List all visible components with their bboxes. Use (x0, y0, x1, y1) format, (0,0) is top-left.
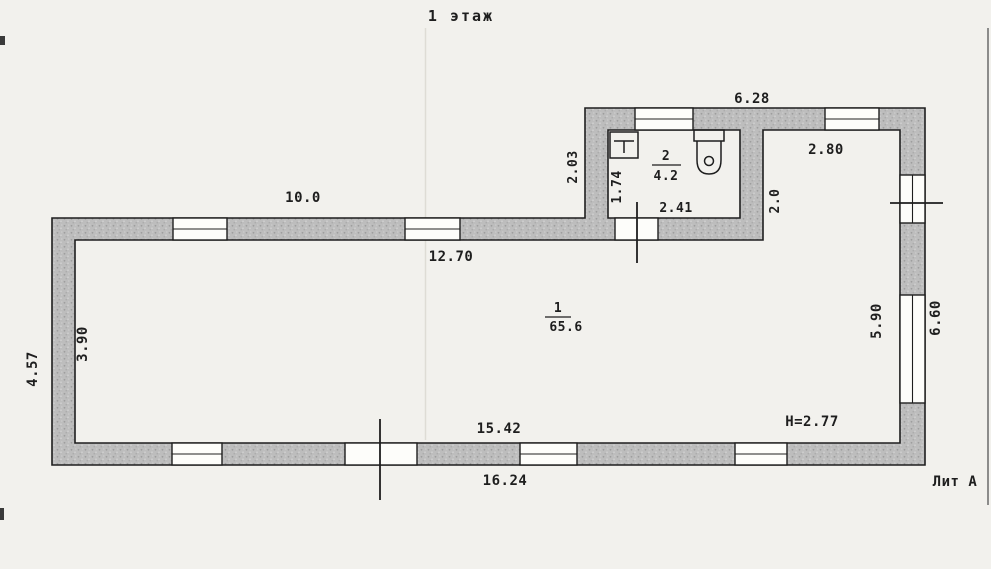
dim-top-wing-outer: 6.28 (734, 91, 770, 107)
svg-text:1: 1 (554, 301, 562, 316)
window (173, 218, 227, 240)
window (825, 108, 879, 130)
dim-right-inner: 5.90 (869, 303, 885, 339)
window (900, 295, 925, 403)
window (635, 108, 693, 130)
dim-hall-depth: 2.0 (768, 189, 783, 214)
window (900, 175, 925, 223)
dim-left-outer: 4.57 (25, 351, 41, 387)
svg-text:4.2: 4.2 (654, 169, 679, 184)
svg-text:2: 2 (662, 149, 670, 164)
floor-plan-drawing: 1 этаж (0, 0, 991, 569)
window (520, 443, 577, 465)
scanned-floor-plan-page: 1 этаж (0, 0, 991, 569)
dim-left-inner: 3.90 (75, 326, 91, 362)
dim-right-outer: 6.60 (928, 300, 944, 336)
window (172, 443, 222, 465)
dim-hall-width: 2.80 (808, 142, 844, 158)
ceiling-height-label: H=2.77 (785, 414, 839, 430)
svg-text:65.6: 65.6 (549, 320, 582, 335)
litera-label: Лит А (933, 474, 978, 490)
scan-speck (0, 508, 4, 520)
dim-bottom-outer: 16.24 (483, 473, 528, 489)
window (405, 218, 460, 240)
dim-main-inner-width-top: 12.70 (429, 249, 474, 265)
floor-title: 1 этаж (428, 7, 494, 25)
dim-bottom-inner: 15.42 (477, 421, 522, 437)
dim-wing-left-outer: 2.03 (566, 150, 581, 183)
dim-bath-inner-width: 2.41 (659, 201, 692, 216)
entrance-opening (345, 443, 417, 465)
scan-speck (0, 36, 5, 45)
dim-top-left-outer: 10.0 (285, 190, 321, 206)
dim-bath-inner-height: 1.74 (610, 170, 625, 203)
window (735, 443, 787, 465)
